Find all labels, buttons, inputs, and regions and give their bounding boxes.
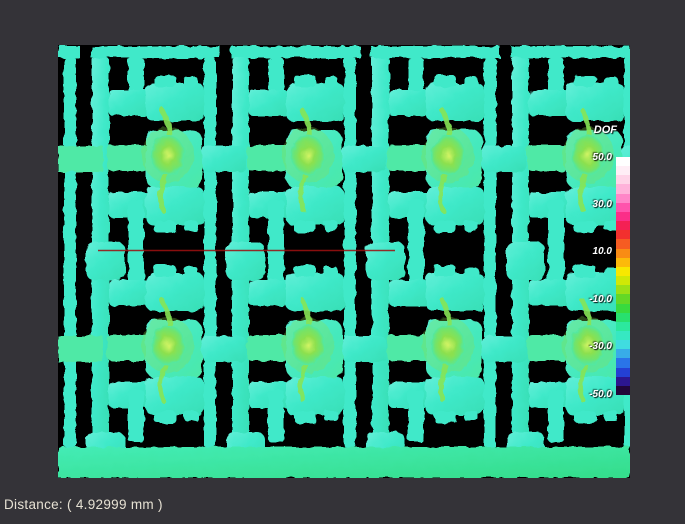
legend-colorbar-step bbox=[616, 194, 630, 203]
legend-colorbar-step bbox=[616, 166, 630, 175]
legend-colorbar-step bbox=[616, 294, 630, 303]
legend-colorbar-step bbox=[616, 157, 630, 166]
legend-colorbar-step bbox=[616, 313, 630, 322]
legend-colorbar-step bbox=[616, 340, 630, 349]
legend-colorbar-step bbox=[616, 331, 630, 340]
distance-readout: Distance: ( 4.92999 mm ) bbox=[4, 497, 163, 512]
legend-tick-label: -10.0 bbox=[589, 294, 612, 306]
legend-colorbar-step bbox=[616, 239, 630, 248]
legend-tick-label: 50.0 bbox=[593, 152, 612, 164]
legend-colorbar-step bbox=[616, 276, 630, 285]
legend-colorbar-step bbox=[616, 386, 630, 395]
legend-colorbar-step bbox=[616, 285, 630, 294]
legend-colorbar-step bbox=[616, 175, 630, 184]
legend-colorbar-step bbox=[616, 358, 630, 367]
legend-colorbar-step bbox=[616, 212, 630, 221]
legend-colorbar-step bbox=[616, 368, 630, 377]
legend-colorbar-step bbox=[616, 203, 630, 212]
heatmap-viewport[interactable]: DOF 50.030.010.0-10.0-30.0-50.0 bbox=[58, 45, 630, 478]
legend-colorbar-step bbox=[616, 304, 630, 313]
legend-colorbar-step bbox=[616, 322, 630, 331]
legend-tick-label: -30.0 bbox=[589, 341, 612, 353]
legend-tick-label: 10.0 bbox=[593, 246, 612, 258]
legend-colorbar-step bbox=[616, 377, 630, 386]
legend-colorbar-step bbox=[616, 230, 630, 239]
legend-tick-label: 30.0 bbox=[593, 199, 612, 211]
legend-colorbar-step bbox=[616, 221, 630, 230]
legend-colorbar-step bbox=[616, 184, 630, 193]
legend-tick-label: -50.0 bbox=[589, 389, 612, 401]
legend-colorbar-step bbox=[616, 267, 630, 276]
legend-colorbar-step bbox=[616, 349, 630, 358]
legend-colorbar-step bbox=[616, 258, 630, 267]
viewer-window: DOF 50.030.010.0-10.0-30.0-50.0 Distance… bbox=[0, 0, 685, 524]
leadframe-heatmap bbox=[58, 45, 630, 478]
legend-colorbar-step bbox=[616, 249, 630, 258]
legend-title: DOF bbox=[594, 124, 617, 137]
legend-colorbar bbox=[616, 157, 630, 395]
